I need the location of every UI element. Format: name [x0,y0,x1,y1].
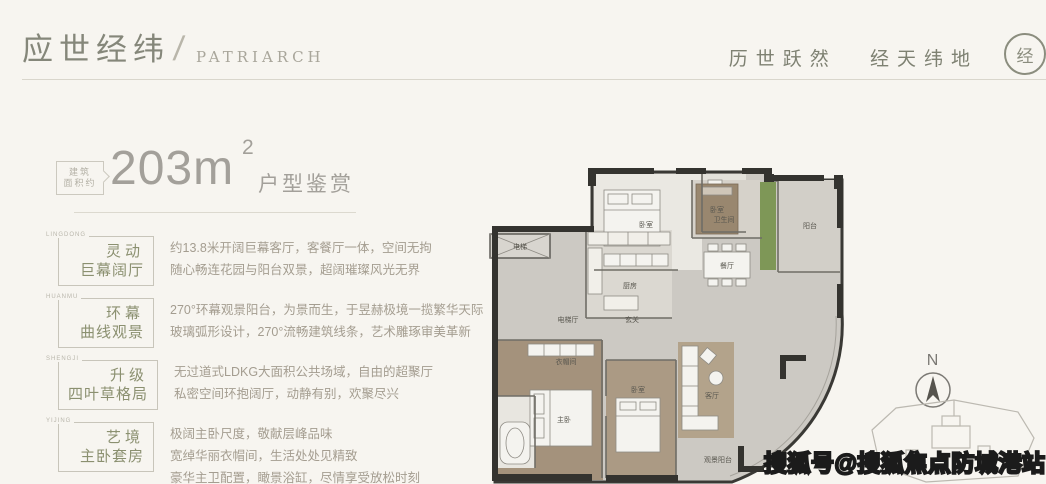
feature-description: 无过道式LDKG大面积公共场域，自由的超聚厅 私密空间环抱阔厅，动静有别，欢聚尽… [174,360,433,405]
planter-strip [760,182,776,270]
feature-section-1: LINGDONG 灵动 巨幕阔厅 约13.8米开阔巨幕客厅，客餐厅一体，空间无拘… [58,236,432,286]
feature-tag-pinyin: LINGDONG [43,232,89,238]
wardrobe-master-icon [528,344,594,356]
watermark: 搜狐号@搜狐焦点防城港站 [764,444,1045,478]
feature-description: 270°环幕观景阳台，为景而生，于昱赫极境一揽繁华天际 玻璃弧形设计，270°流… [170,298,483,343]
feature-section-4: YIJING 艺境 主卧套房 极阔主卧尺度，敬献层峰品味 宽绰华丽衣帽间，生活处… [58,422,420,484]
area-value: 203m [110,141,234,196]
brand-title: 应世经纬 [22,24,170,69]
feature-tag-box: LINGDONG 灵动 巨幕阔厅 [58,236,154,286]
poster-page: 应世经纬 / PATRIARCH 历世跃然 经天纬地 经 建筑 面积约 203m… [0,0,1046,484]
slogan-part-2: 经天纬地 [870,49,978,70]
feature-description: 极阔主卧尺度，敬献层峰品味 宽绰华丽衣帽间，生活处处见精致 豪华主卫配置，瞰景浴… [170,422,420,484]
area-superscript: 2 [242,136,254,160]
room-label-balcony-right: 阳台 [803,221,817,230]
seal-icon: 经 [1004,33,1046,75]
room-label-living: 客厅 [705,391,719,400]
feature-tag-pinyin: YIJING [43,418,74,424]
feature-tag-box: YIJING 艺境 主卧套房 [58,422,154,472]
feature-tag-pinyin: HUANMU [43,294,81,300]
header-slogan: 历世跃然 经天纬地 [729,44,978,71]
feature-tag-box: HUANMU 环幕 曲线观景 [58,298,154,348]
bed-bottom-icon [616,398,660,452]
floor-plan: 卧室 卫生间 卧室 阳台 厨房 餐厅 电梯 电梯厅 玄关 客厅 主卧 衣帽间 卧… [480,164,880,484]
brand-title-latin: PATRIARCH [196,48,325,66]
room-label-elevator-hall: 电梯厅 [558,315,579,324]
room-label-bedroom-bottom: 卧室 [631,385,645,394]
header-divider [22,79,1046,80]
room-label-master: 主卧 [557,415,571,424]
room-label-view-balcony: 观景阳台 [704,455,732,464]
room-label-cloakroom: 衣帽间 [556,357,577,366]
wardrobe-top-icon [604,254,668,266]
area-note-bubble: 建筑 面积约 [56,161,104,195]
room-label-bedroom-right: 卧室 [710,205,724,214]
slogan-part-1: 历世跃然 [729,49,837,70]
feature-description: 约13.8米开阔巨幕客厅，客餐厅一体，空间无拘 随心畅连花园与阳台双景，超阔璀璨… [170,236,432,281]
room-label-bedroom-top: 卧室 [639,220,653,229]
feature-tag-box: SHENGJI 升级 四叶草格局 [58,360,158,410]
room-label-dining: 餐厅 [720,261,734,270]
room-label-bath-top: 卫生间 [714,215,735,224]
feature-section-2: HUANMU 环幕 曲线观景 270°环幕观景阳台，为景而生，于昱赫极境一揽繁华… [58,298,483,348]
feature-tag-pinyin: SHENGJI [43,356,82,362]
area-suffix: 户型鉴赏 [258,168,354,198]
compass-north-label: N [904,352,962,370]
brand-slash-divider: / [171,30,186,69]
room-label-elevator: 电梯 [513,242,527,251]
room-label-kitchen: 厨房 [623,281,637,290]
bathtub-icon [500,422,530,464]
feature-section-3: SHENGJI 升级 四叶草格局 无过道式LDKG大面积公共场域，自由的超聚厅 … [58,360,433,410]
room-label-foyer: 玄关 [625,315,639,324]
area-divider [74,212,356,213]
